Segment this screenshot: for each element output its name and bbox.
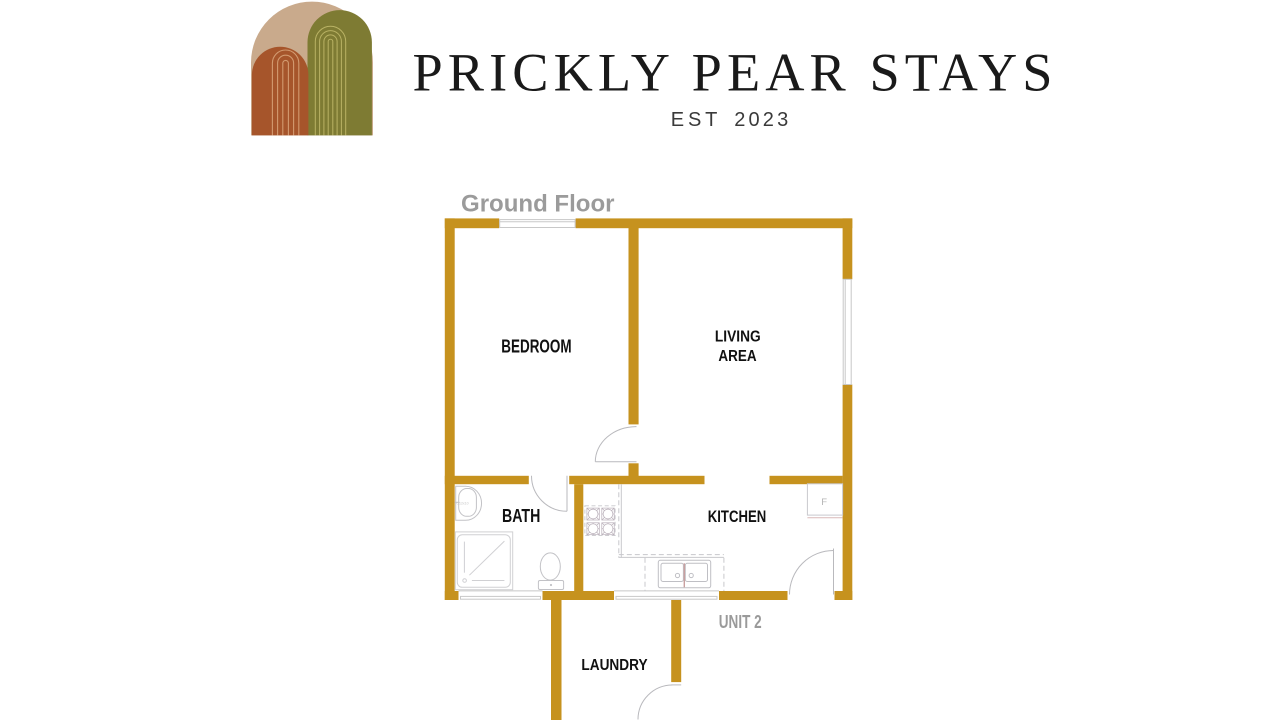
svg-text:AREA: AREA xyxy=(718,348,756,365)
svg-text:Ground Floor: Ground Floor xyxy=(461,191,615,218)
svg-text:EST: EST xyxy=(671,109,718,131)
svg-text:LAUNDRY: LAUNDRY xyxy=(581,657,648,674)
svg-text:F: F xyxy=(821,497,827,508)
svg-text:KITCHEN: KITCHEN xyxy=(708,508,766,526)
svg-text:UNIT 2: UNIT 2 xyxy=(719,611,762,632)
svg-text:BEDROOM: BEDROOM xyxy=(501,335,571,356)
svg-text:C12x10: C12x10 xyxy=(457,501,469,505)
svg-text:PRICKLY PEAR STAYS: PRICKLY PEAR STAYS xyxy=(413,43,1053,103)
svg-text:BATH: BATH xyxy=(502,505,540,526)
svg-text:2023: 2023 xyxy=(734,109,788,131)
svg-text:LIVING: LIVING xyxy=(715,328,761,345)
